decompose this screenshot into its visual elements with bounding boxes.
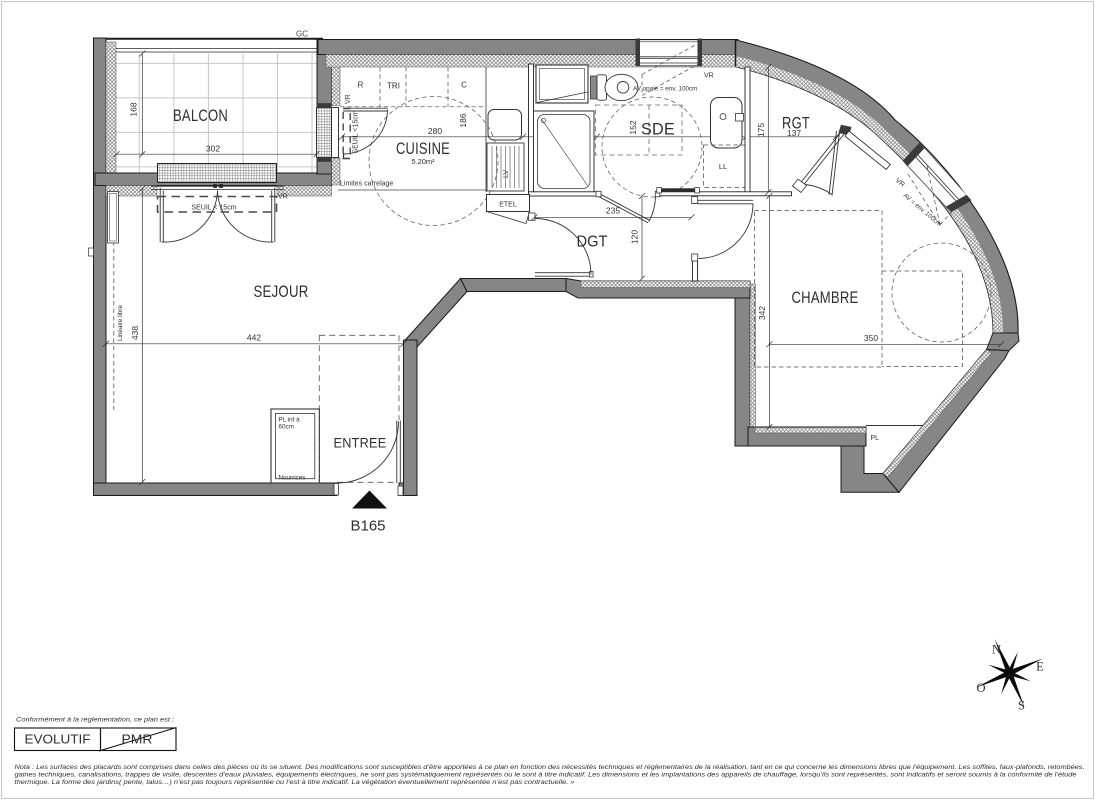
svg-text:168: 168	[129, 102, 139, 116]
svg-text:LV: LV	[503, 170, 510, 178]
svg-text:VR: VR	[345, 94, 352, 104]
svg-text:N: N	[992, 643, 1001, 657]
svg-text:CUISINE: CUISINE	[396, 139, 450, 158]
svg-text:VR: VR	[278, 194, 288, 201]
svg-text:E: E	[1036, 660, 1044, 674]
svg-text:302: 302	[206, 144, 220, 154]
svg-text:SDE: SDE	[641, 120, 675, 139]
svg-text:DGT: DGT	[577, 234, 608, 251]
svg-text:Limites carrelage: Limites carrelage	[340, 181, 393, 188]
svg-text:R: R	[358, 81, 364, 90]
svg-text:SEJOUR: SEJOUR	[254, 282, 309, 301]
svg-text:ENTREE: ENTREE	[334, 435, 387, 451]
svg-text:280: 280	[428, 126, 442, 136]
svg-text:CHAMBRE: CHAMBRE	[792, 288, 859, 307]
svg-text:Conformément à la réglementati: Conformément à la réglementation, ce pla…	[16, 717, 174, 724]
svg-text:PMR: PMR	[122, 733, 153, 747]
svg-text:Nota : Les surfaces des placar: Nota : Les surfaces des placards sont co…	[15, 764, 1085, 771]
svg-text:SEUIL <15cm: SEUIL <15cm	[353, 110, 360, 153]
svg-text:60cm: 60cm	[279, 424, 294, 431]
svg-text:S: S	[1018, 699, 1025, 713]
svg-text:EVOLUTIF: EVOLUTIF	[25, 733, 91, 747]
svg-text:GC: GC	[296, 30, 308, 39]
svg-text:O: O	[976, 681, 985, 695]
svg-text:442: 442	[247, 333, 261, 343]
svg-text:VR: VR	[704, 73, 714, 80]
svg-text:SEUIL < 15cm: SEUIL < 15cm	[191, 205, 236, 212]
svg-text:342: 342	[757, 306, 767, 320]
svg-text:PL: PL	[871, 435, 880, 442]
svg-text:thermique. La forme des jardin: thermique. La forme des jardins( pente, …	[15, 779, 576, 786]
svg-text:Nourrices: Nourrices	[279, 475, 306, 482]
svg-text:235: 235	[606, 206, 620, 216]
svg-text:PL inf à: PL inf à	[279, 417, 301, 424]
svg-text:152: 152	[628, 120, 638, 134]
svg-text:LL: LL	[719, 162, 727, 171]
svg-text:AV opale = env. 100cm: AV opale = env. 100cm	[633, 86, 697, 93]
svg-text:5.20m²: 5.20m²	[411, 157, 435, 166]
svg-text:TRI: TRI	[387, 82, 400, 91]
svg-text:438: 438	[130, 326, 140, 340]
svg-text:137: 137	[787, 128, 801, 138]
svg-text:BALCON: BALCON	[173, 106, 228, 125]
svg-text:175: 175	[756, 123, 766, 137]
svg-text:C: C	[461, 81, 467, 90]
svg-text:gaines techniques, canalisatio: gaines techniques, canalisations, trappe…	[15, 772, 1078, 779]
svg-text:Linéaire libre: Linéaire libre	[117, 304, 124, 341]
svg-text:186: 186	[458, 113, 468, 127]
svg-text:350: 350	[864, 333, 878, 343]
svg-text:120: 120	[630, 230, 640, 244]
svg-text:B165: B165	[350, 518, 385, 535]
svg-text:ETEL: ETEL	[499, 202, 517, 209]
